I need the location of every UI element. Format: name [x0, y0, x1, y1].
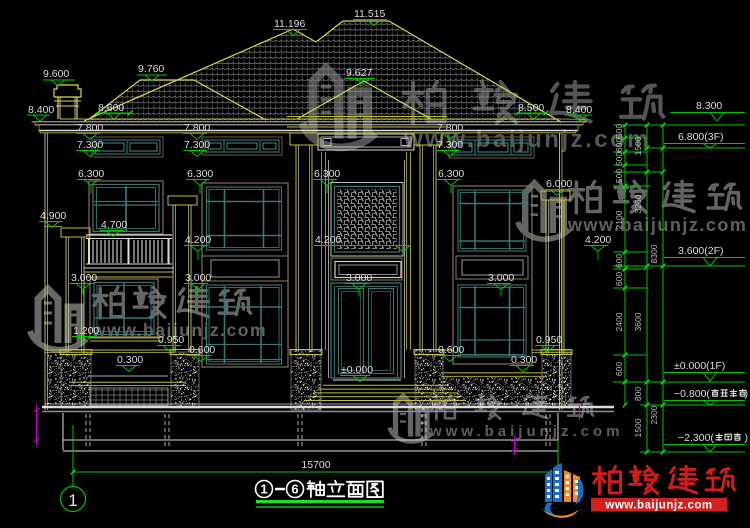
- svg-text:3.000: 3.000: [488, 272, 514, 284]
- svg-text:4.200: 4.200: [315, 234, 341, 246]
- svg-text:8.600: 8.600: [98, 102, 124, 114]
- svg-text:6: 6: [291, 482, 298, 497]
- svg-text:): ): [745, 388, 749, 400]
- svg-text:500: 500: [614, 152, 624, 166]
- svg-text:1: 1: [260, 482, 267, 497]
- svg-text:7.300: 7.300: [437, 139, 463, 151]
- svg-text:4.200: 4.200: [585, 234, 611, 246]
- svg-text:1: 1: [68, 491, 77, 510]
- svg-text:11.515: 11.515: [354, 8, 385, 20]
- svg-text:6.800(3F): 6.800(3F): [678, 131, 724, 143]
- svg-text:7.800: 7.800: [77, 122, 103, 134]
- svg-text:600: 600: [614, 254, 624, 268]
- svg-text:8.500: 8.500: [518, 102, 544, 114]
- svg-text:8.300: 8.300: [696, 100, 722, 112]
- svg-text:2100: 2100: [614, 210, 624, 229]
- svg-text:800: 800: [633, 387, 643, 401]
- svg-text:3.000: 3.000: [185, 272, 211, 284]
- svg-text:4.700: 4.700: [101, 219, 127, 231]
- svg-text:500: 500: [614, 124, 624, 138]
- svg-text:3600: 3600: [633, 312, 643, 331]
- svg-text:0.950: 0.950: [536, 334, 562, 346]
- svg-text:6.300: 6.300: [78, 168, 104, 180]
- svg-text:8.400: 8.400: [28, 104, 54, 116]
- svg-text:www.baijunjz.com: www.baijunjz.com: [429, 423, 623, 440]
- svg-text:www.baijunjz.com: www.baijunjz.com: [604, 500, 712, 512]
- svg-text:4.900: 4.900: [40, 210, 66, 222]
- svg-text:7.300: 7.300: [184, 139, 210, 151]
- svg-text:9.760: 9.760: [138, 63, 164, 75]
- svg-text:±0.000(1F): ±0.000(1F): [674, 360, 725, 372]
- svg-text:): ): [745, 432, 749, 444]
- svg-text:6.300: 6.300: [314, 168, 340, 180]
- svg-text:0.600: 0.600: [438, 344, 464, 356]
- svg-text:6.300: 6.300: [187, 168, 213, 180]
- svg-text:4.200: 4.200: [185, 234, 211, 246]
- svg-text:1500: 1500: [633, 136, 643, 155]
- svg-text:3.600(2F): 3.600(2F): [678, 245, 724, 257]
- svg-text:9.627: 9.627: [346, 67, 372, 79]
- svg-text:−2.300(: −2.300(: [678, 432, 714, 444]
- svg-text:3.000: 3.000: [71, 272, 97, 284]
- svg-text:−0.800(: −0.800(: [674, 388, 710, 400]
- svg-text:7.800: 7.800: [437, 122, 463, 134]
- svg-text:500: 500: [614, 169, 624, 183]
- svg-text:2400: 2400: [614, 312, 624, 331]
- svg-text:0.950: 0.950: [158, 334, 184, 346]
- svg-text:0.600: 0.600: [189, 344, 215, 356]
- svg-text:11.196: 11.196: [274, 18, 305, 30]
- svg-text:www.baijunjz.com: www.baijunjz.com: [567, 215, 747, 235]
- svg-text:2300: 2300: [649, 405, 659, 424]
- svg-text:1.200: 1.200: [73, 325, 99, 337]
- svg-text:600: 600: [614, 138, 624, 152]
- svg-text:8300: 8300: [649, 244, 659, 263]
- svg-text:7.300: 7.300: [77, 139, 103, 151]
- svg-text:0.300: 0.300: [117, 354, 143, 366]
- svg-text:1500: 1500: [633, 418, 643, 437]
- svg-text:3.000: 3.000: [346, 272, 372, 284]
- svg-text:0.300: 0.300: [511, 354, 537, 366]
- svg-text:7.800: 7.800: [184, 122, 210, 134]
- svg-text:15700: 15700: [301, 459, 330, 471]
- svg-text:6.300: 6.300: [438, 168, 464, 180]
- svg-text:600: 600: [614, 362, 624, 376]
- svg-text:600: 600: [614, 272, 624, 286]
- svg-text:±0.000: ±0.000: [341, 364, 373, 376]
- svg-text:8.400: 8.400: [566, 104, 592, 116]
- svg-text:3200: 3200: [633, 194, 643, 213]
- svg-text:9.600: 9.600: [43, 68, 69, 80]
- svg-text:6.000: 6.000: [546, 178, 572, 190]
